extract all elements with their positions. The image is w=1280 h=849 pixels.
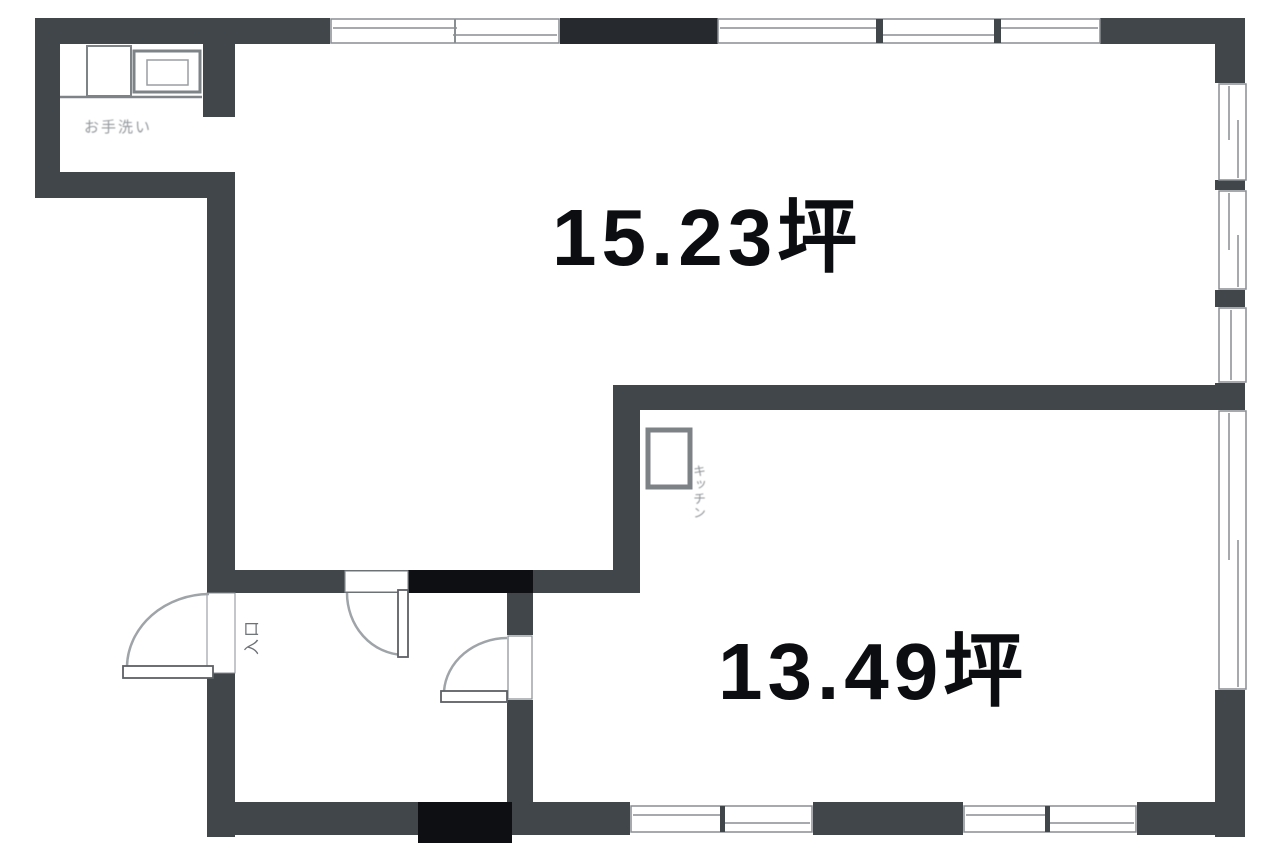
washroom-fixtures: [60, 46, 202, 97]
entrance-door-arc: [127, 594, 209, 666]
wall-washroom-right: [203, 18, 235, 117]
hall-second-room-door-arc: [444, 638, 507, 691]
room-area-label-second: 13.49坪: [718, 632, 1028, 712]
hall-main-room-door: [345, 571, 408, 657]
hall-main-room-door-arc: [347, 593, 403, 655]
entrance-door-leaf: [123, 666, 213, 678]
wall-room-divider-vertical: [613, 385, 640, 593]
kitchen-label: キッチン: [692, 464, 705, 564]
wall-right-mullion-1: [1215, 180, 1245, 190]
window-bottom-2: [964, 806, 1136, 832]
washroom-sink-box: [87, 46, 131, 96]
wall-right-mullion-2: [1215, 290, 1245, 307]
wall-hall-top-black: [408, 570, 533, 593]
window-top-1: [331, 19, 559, 43]
wall-washroom-bottom: [35, 172, 235, 198]
window-right-1: [1219, 84, 1246, 180]
kitchen-sink-box: [648, 430, 690, 487]
washroom-label: お手洗い: [84, 120, 152, 135]
floor-plan: 15.23坪 13.49坪 お手洗い キッチン 入口: [0, 0, 1280, 849]
wall-right-bottom: [1215, 690, 1245, 837]
wall-left-column: [207, 172, 235, 593]
wall-hall-right-lower: [507, 700, 533, 802]
wall-right-top: [1215, 18, 1245, 83]
window-right-3: [1219, 308, 1246, 382]
wall-top-left: [35, 18, 330, 44]
window-top-2: [718, 19, 1100, 43]
entrance-label-text: 入口: [245, 619, 261, 655]
room-area-label-main: 15.23坪: [552, 198, 862, 278]
wall-left-upper: [35, 18, 60, 198]
washroom-basin-inner: [147, 60, 188, 85]
wall-room-divider-horizontal: [613, 385, 1222, 410]
wall-bottom-black-segment: [418, 802, 512, 843]
hall-main-room-door-leaf: [398, 590, 408, 657]
floor-plan-drawing: [0, 0, 1280, 849]
wall-hall-right-upper: [507, 593, 533, 635]
wall-top-middle: [560, 18, 718, 44]
window-right-2: [1219, 191, 1246, 289]
entrance-door: [123, 593, 235, 678]
hall-second-room-door-leaf: [441, 691, 507, 702]
window-right-4: [1219, 411, 1246, 689]
window-bottom-1: [631, 806, 812, 832]
entrance-label: 入口: [223, 605, 283, 669]
wall-bottom-middle: [813, 802, 963, 835]
hall-second-room-door: [441, 636, 532, 702]
